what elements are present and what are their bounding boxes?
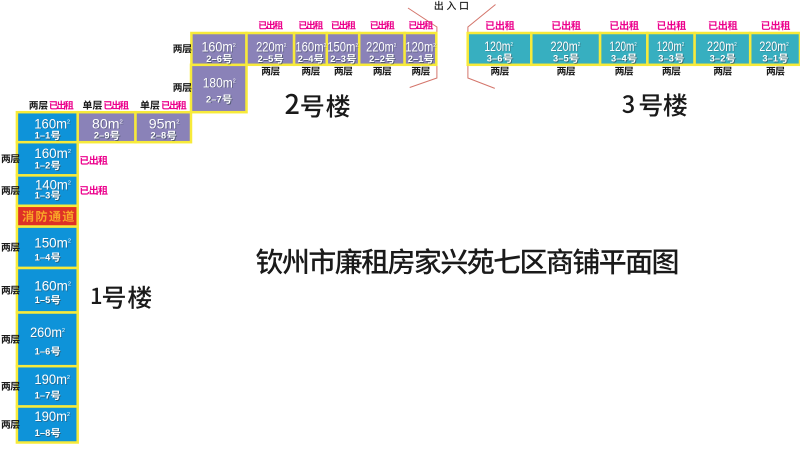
svg-text:190m2: 190m2 — [34, 409, 70, 424]
svg-text:220m2: 220m2 — [366, 40, 396, 55]
svg-text:160m2: 160m2 — [34, 279, 71, 294]
svg-text:160m2: 160m2 — [201, 39, 235, 54]
svg-text:95m2: 95m2 — [149, 117, 180, 132]
svg-text:160m2: 160m2 — [34, 146, 71, 161]
svg-text:220m2: 220m2 — [551, 39, 581, 54]
svg-text:120m2: 120m2 — [609, 38, 637, 54]
svg-text:2–5: 2–5 — [258, 54, 274, 64]
svg-text:220m2: 220m2 — [256, 40, 287, 55]
svg-text:120m2: 120m2 — [405, 40, 436, 55]
svg-text:1–6: 1–6 — [35, 346, 51, 356]
svg-text:160m2: 160m2 — [34, 116, 70, 131]
svg-text:2–2: 2–2 — [369, 54, 385, 64]
svg-text:2–9: 2–9 — [94, 131, 110, 141]
svg-text:1–1: 1–1 — [35, 131, 51, 141]
svg-text:3–6: 3–6 — [487, 53, 503, 63]
svg-text:190m2: 190m2 — [34, 372, 70, 387]
svg-text:3–3: 3–3 — [658, 53, 674, 63]
svg-text:80m2: 80m2 — [92, 117, 123, 132]
svg-text:2–8: 2–8 — [151, 131, 167, 141]
svg-text:180m2: 180m2 — [203, 75, 236, 91]
svg-text:220m2: 220m2 — [759, 39, 788, 54]
svg-text:120m2: 120m2 — [657, 38, 685, 54]
svg-text:260m2: 260m2 — [30, 325, 65, 340]
svg-text:1–8: 1–8 — [35, 428, 51, 438]
svg-text:3–1: 3–1 — [762, 53, 778, 63]
svg-text:1–2: 1–2 — [35, 161, 51, 171]
svg-text:150m2: 150m2 — [327, 40, 358, 55]
svg-text:120m2: 120m2 — [484, 39, 513, 55]
svg-text:3–4: 3–4 — [611, 53, 628, 63]
svg-text:150m2: 150m2 — [34, 236, 71, 251]
svg-text:220m2: 220m2 — [707, 39, 737, 54]
svg-text:2–1: 2–1 — [408, 54, 424, 64]
svg-text:1–5: 1–5 — [35, 295, 51, 305]
svg-text:3–5: 3–5 — [553, 53, 569, 63]
svg-text:2–3: 2–3 — [330, 54, 346, 64]
svg-text:160m2: 160m2 — [295, 40, 326, 55]
svg-text:3–2: 3–2 — [710, 53, 726, 63]
svg-text:1–4: 1–4 — [35, 252, 52, 262]
svg-text:1–7: 1–7 — [35, 391, 51, 401]
svg-text:2–7: 2–7 — [206, 94, 222, 104]
svg-text:2–4: 2–4 — [298, 54, 315, 64]
svg-text:2–6: 2–6 — [206, 54, 222, 64]
svg-text:1–3: 1–3 — [35, 191, 51, 201]
